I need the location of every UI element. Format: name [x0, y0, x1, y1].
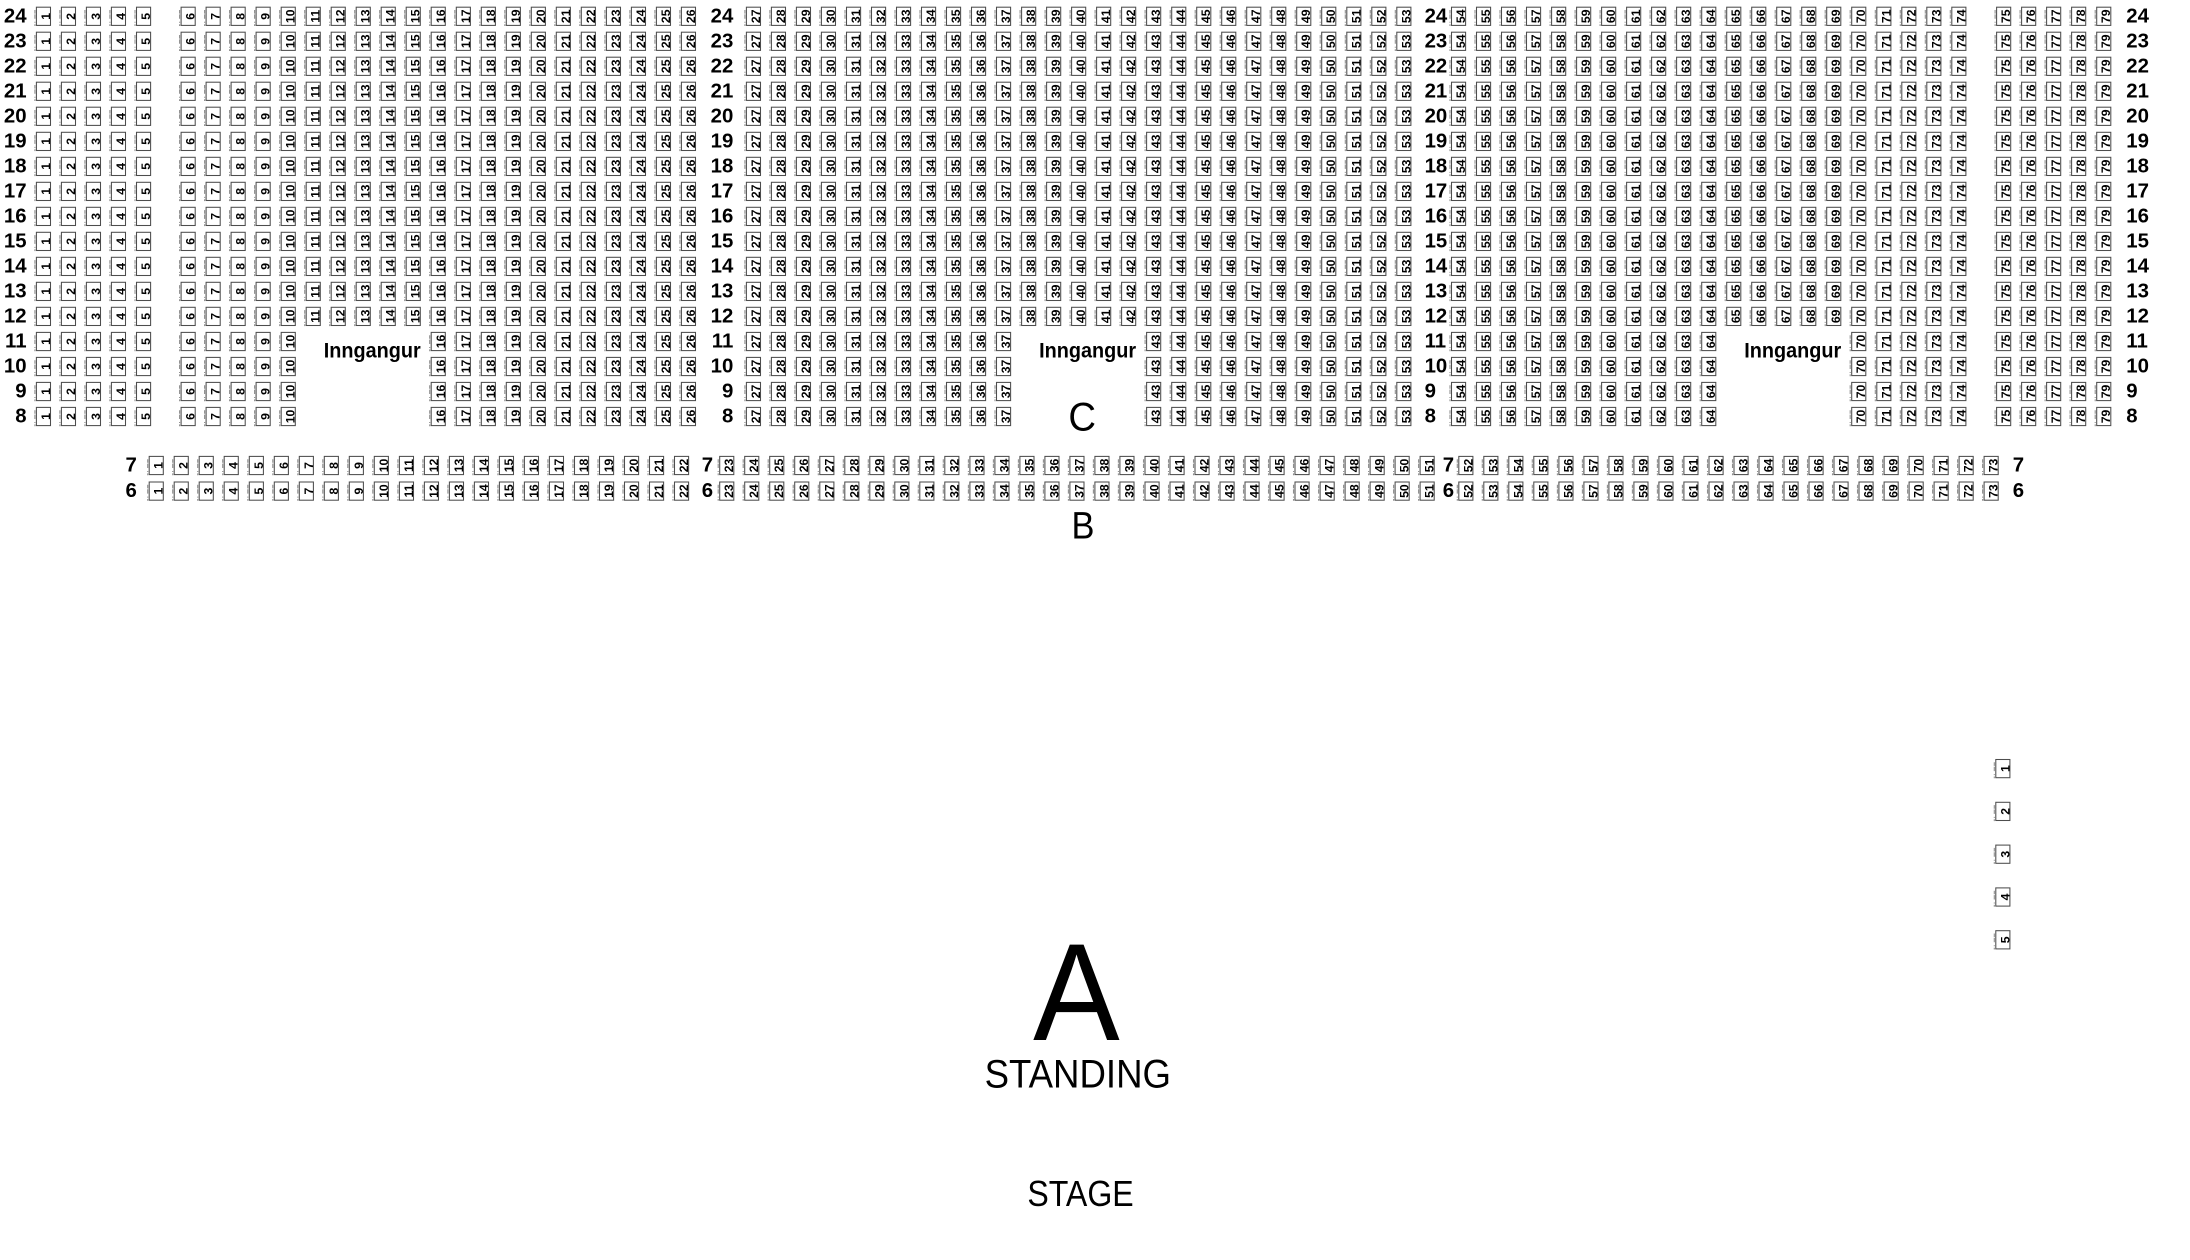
svg-text:9: 9	[259, 313, 273, 320]
svg-text:21: 21	[559, 360, 573, 374]
svg-text:25: 25	[659, 360, 673, 374]
svg-text:47: 47	[1249, 34, 1263, 48]
svg-text:4: 4	[114, 388, 128, 395]
svg-text:30: 30	[824, 360, 838, 374]
svg-text:16: 16	[1425, 205, 1448, 227]
svg-text:26: 26	[684, 134, 698, 148]
svg-text:33: 33	[899, 109, 913, 123]
svg-text:36: 36	[974, 159, 988, 173]
svg-text:9: 9	[259, 213, 273, 220]
svg-text:24: 24	[634, 109, 648, 123]
svg-text:30: 30	[824, 34, 838, 48]
svg-text:76: 76	[2024, 259, 2038, 273]
svg-text:55: 55	[1479, 360, 1493, 374]
svg-text:17: 17	[459, 9, 473, 23]
svg-text:35: 35	[1022, 484, 1036, 498]
svg-text:27: 27	[749, 34, 763, 48]
svg-text:7: 7	[209, 113, 223, 120]
svg-text:42: 42	[1124, 309, 1138, 323]
svg-text:57: 57	[1529, 309, 1543, 323]
svg-text:5: 5	[252, 487, 266, 494]
svg-text:5: 5	[139, 363, 153, 370]
svg-text:57: 57	[1529, 134, 1543, 148]
svg-text:24: 24	[634, 134, 648, 148]
svg-text:24: 24	[634, 385, 648, 399]
svg-text:62: 62	[1654, 284, 1668, 298]
svg-text:71: 71	[1879, 159, 1893, 173]
svg-text:17: 17	[459, 284, 473, 298]
svg-text:68: 68	[1804, 209, 1818, 223]
svg-text:2: 2	[64, 63, 78, 70]
svg-text:57: 57	[1529, 109, 1543, 123]
svg-text:71: 71	[1879, 234, 1893, 248]
svg-text:44: 44	[1174, 109, 1188, 123]
svg-text:34: 34	[924, 259, 938, 273]
svg-text:61: 61	[1629, 385, 1643, 399]
svg-text:53: 53	[1486, 484, 1500, 498]
svg-text:55: 55	[1479, 335, 1493, 349]
svg-text:68: 68	[1804, 59, 1818, 73]
svg-text:1: 1	[39, 163, 53, 170]
svg-text:19: 19	[509, 84, 523, 98]
svg-text:44: 44	[1174, 84, 1188, 98]
svg-text:72: 72	[1904, 84, 1918, 98]
svg-text:31: 31	[849, 9, 863, 23]
svg-text:42: 42	[1124, 234, 1138, 248]
svg-text:45: 45	[1199, 34, 1213, 48]
svg-text:28: 28	[774, 134, 788, 148]
svg-text:50: 50	[1324, 209, 1338, 223]
svg-text:63: 63	[1679, 410, 1693, 424]
svg-text:17: 17	[459, 309, 473, 323]
svg-text:35: 35	[949, 234, 963, 248]
svg-text:29: 29	[799, 84, 813, 98]
svg-text:72: 72	[1904, 109, 1918, 123]
svg-text:42: 42	[1124, 184, 1138, 198]
svg-text:22: 22	[584, 410, 598, 424]
svg-text:30: 30	[824, 234, 838, 248]
svg-text:37: 37	[999, 84, 1013, 98]
svg-text:16: 16	[434, 84, 448, 98]
svg-text:13: 13	[711, 280, 734, 302]
svg-text:10: 10	[284, 9, 298, 23]
svg-text:4: 4	[114, 13, 128, 20]
svg-text:65: 65	[1729, 59, 1743, 73]
svg-text:4: 4	[114, 363, 128, 370]
svg-text:55: 55	[1479, 184, 1493, 198]
svg-text:23: 23	[2126, 30, 2149, 52]
svg-text:65: 65	[1729, 284, 1743, 298]
svg-text:43: 43	[1149, 209, 1163, 223]
svg-text:73: 73	[1929, 234, 1943, 248]
svg-text:23: 23	[609, 410, 623, 424]
svg-text:59: 59	[1579, 385, 1593, 399]
svg-text:10: 10	[711, 356, 734, 378]
svg-text:64: 64	[1762, 459, 1776, 473]
svg-text:64: 64	[1704, 109, 1718, 123]
svg-text:1: 1	[39, 13, 53, 20]
svg-text:59: 59	[1579, 309, 1593, 323]
svg-text:22: 22	[584, 360, 598, 374]
svg-text:14: 14	[384, 109, 398, 123]
svg-text:64: 64	[1704, 59, 1718, 73]
svg-text:11: 11	[309, 60, 323, 73]
svg-text:11: 11	[309, 35, 323, 48]
svg-text:65: 65	[1787, 484, 1801, 498]
svg-text:36: 36	[974, 134, 988, 148]
svg-text:47: 47	[1249, 234, 1263, 248]
svg-text:70: 70	[1854, 385, 1868, 399]
svg-text:70: 70	[1854, 410, 1868, 424]
svg-text:5: 5	[139, 13, 153, 20]
svg-text:54: 54	[1454, 385, 1468, 399]
svg-text:45: 45	[1199, 234, 1213, 248]
svg-text:79: 79	[2099, 9, 2113, 23]
svg-text:51: 51	[1349, 159, 1363, 173]
svg-text:59: 59	[1579, 109, 1593, 123]
svg-text:50: 50	[1398, 484, 1412, 498]
svg-text:9: 9	[259, 413, 273, 420]
svg-text:53: 53	[1399, 109, 1413, 123]
svg-text:49: 49	[1299, 84, 1313, 98]
svg-text:62: 62	[1654, 34, 1668, 48]
svg-text:47: 47	[1249, 59, 1263, 73]
svg-text:54: 54	[1511, 459, 1525, 473]
svg-text:15: 15	[409, 209, 423, 223]
svg-text:49: 49	[1299, 284, 1313, 298]
svg-text:44: 44	[1174, 59, 1188, 73]
svg-text:17: 17	[459, 209, 473, 223]
svg-text:75: 75	[1999, 335, 2013, 349]
svg-text:49: 49	[1299, 59, 1313, 73]
svg-text:42: 42	[1124, 59, 1138, 73]
svg-text:33: 33	[899, 59, 913, 73]
svg-text:51: 51	[1423, 459, 1437, 473]
svg-text:33: 33	[899, 385, 913, 399]
svg-text:68: 68	[1804, 259, 1818, 273]
svg-text:49: 49	[1299, 209, 1313, 223]
svg-text:18: 18	[2126, 155, 2149, 177]
svg-text:71: 71	[1879, 209, 1893, 223]
svg-text:40: 40	[1074, 59, 1088, 73]
svg-text:46: 46	[1224, 385, 1238, 399]
svg-text:25: 25	[659, 34, 673, 48]
svg-text:27: 27	[749, 184, 763, 198]
svg-text:11: 11	[309, 185, 323, 198]
svg-text:17: 17	[459, 259, 473, 273]
svg-text:76: 76	[2024, 9, 2038, 23]
svg-text:23: 23	[609, 309, 623, 323]
svg-text:37: 37	[999, 184, 1013, 198]
svg-text:27: 27	[822, 459, 836, 473]
svg-text:67: 67	[1837, 484, 1851, 498]
svg-text:26: 26	[684, 209, 698, 223]
svg-text:20: 20	[2126, 105, 2149, 127]
svg-text:10: 10	[284, 259, 298, 273]
svg-text:42: 42	[1124, 84, 1138, 98]
svg-text:14: 14	[384, 59, 398, 73]
svg-text:55: 55	[1479, 134, 1493, 148]
svg-text:28: 28	[774, 59, 788, 73]
svg-text:10: 10	[284, 410, 298, 424]
svg-text:72: 72	[1904, 309, 1918, 323]
svg-text:20: 20	[1425, 105, 1448, 127]
svg-text:71: 71	[1879, 184, 1893, 198]
svg-text:63: 63	[1679, 109, 1693, 123]
svg-text:7: 7	[209, 138, 223, 145]
svg-text:20: 20	[534, 59, 548, 73]
svg-text:78: 78	[2074, 109, 2088, 123]
svg-text:25: 25	[659, 134, 673, 148]
svg-text:22: 22	[677, 459, 691, 473]
svg-text:30: 30	[824, 109, 838, 123]
svg-text:57: 57	[1529, 360, 1543, 374]
svg-text:69: 69	[1829, 184, 1843, 198]
svg-text:59: 59	[1579, 84, 1593, 98]
svg-text:71: 71	[1879, 134, 1893, 148]
svg-text:25: 25	[659, 385, 673, 399]
svg-text:43: 43	[1149, 259, 1163, 273]
svg-text:34: 34	[924, 34, 938, 48]
svg-text:32: 32	[874, 159, 888, 173]
svg-text:77: 77	[2049, 259, 2063, 273]
svg-text:55: 55	[1479, 234, 1493, 248]
svg-text:59: 59	[1579, 9, 1593, 23]
svg-text:56: 56	[1504, 184, 1518, 198]
svg-text:17: 17	[459, 109, 473, 123]
svg-text:15: 15	[409, 159, 423, 173]
svg-text:18: 18	[484, 410, 498, 424]
svg-text:19: 19	[509, 9, 523, 23]
svg-text:16: 16	[527, 484, 541, 498]
svg-text:2: 2	[64, 313, 78, 320]
svg-text:51: 51	[1349, 385, 1363, 399]
svg-text:29: 29	[799, 335, 813, 349]
svg-text:43: 43	[1149, 335, 1163, 349]
svg-text:32: 32	[874, 59, 888, 73]
svg-text:28: 28	[847, 484, 861, 498]
svg-text:59: 59	[1579, 209, 1593, 223]
svg-text:50: 50	[1324, 109, 1338, 123]
svg-text:20: 20	[534, 159, 548, 173]
svg-text:6: 6	[184, 313, 198, 320]
svg-text:60: 60	[1604, 259, 1618, 273]
svg-text:19: 19	[509, 59, 523, 73]
svg-text:14: 14	[384, 234, 398, 248]
svg-text:44: 44	[1174, 335, 1188, 349]
svg-text:68: 68	[1804, 34, 1818, 48]
svg-text:79: 79	[2099, 184, 2113, 198]
svg-text:19: 19	[509, 209, 523, 223]
svg-text:44: 44	[1174, 159, 1188, 173]
svg-text:40: 40	[1074, 134, 1088, 148]
svg-text:31: 31	[849, 309, 863, 323]
svg-text:73: 73	[1929, 209, 1943, 223]
svg-text:58: 58	[1554, 335, 1568, 349]
svg-text:73: 73	[1929, 84, 1943, 98]
svg-text:9: 9	[259, 88, 273, 95]
svg-text:47: 47	[1323, 484, 1337, 498]
svg-text:3: 3	[1998, 851, 2012, 858]
svg-text:78: 78	[2074, 9, 2088, 23]
svg-text:39: 39	[1122, 484, 1136, 498]
svg-text:52: 52	[1461, 484, 1475, 498]
svg-text:61: 61	[1629, 159, 1643, 173]
svg-text:73: 73	[1929, 360, 1943, 374]
svg-text:70: 70	[1854, 335, 1868, 349]
svg-text:65: 65	[1729, 309, 1743, 323]
svg-text:76: 76	[2024, 184, 2038, 198]
svg-text:78: 78	[2074, 84, 2088, 98]
svg-text:26: 26	[797, 484, 811, 498]
svg-text:75: 75	[1999, 134, 2013, 148]
svg-text:18: 18	[484, 309, 498, 323]
svg-text:2: 2	[177, 487, 191, 494]
svg-text:54: 54	[1454, 209, 1468, 223]
svg-text:76: 76	[2024, 284, 2038, 298]
svg-text:66: 66	[1754, 159, 1768, 173]
svg-text:54: 54	[1454, 134, 1468, 148]
svg-text:52: 52	[1374, 109, 1388, 123]
svg-text:22: 22	[4, 55, 27, 77]
svg-text:58: 58	[1554, 184, 1568, 198]
svg-text:2: 2	[64, 113, 78, 120]
svg-text:19: 19	[509, 360, 523, 374]
svg-text:19: 19	[509, 410, 523, 424]
svg-text:69: 69	[1829, 309, 1843, 323]
svg-text:10: 10	[377, 484, 391, 498]
svg-text:49: 49	[1299, 259, 1313, 273]
svg-text:61: 61	[1629, 59, 1643, 73]
svg-text:57: 57	[1529, 209, 1543, 223]
svg-text:20: 20	[534, 209, 548, 223]
svg-text:73: 73	[1929, 59, 1943, 73]
svg-text:13: 13	[359, 184, 373, 198]
svg-text:40: 40	[1074, 84, 1088, 98]
svg-text:4: 4	[1998, 893, 2012, 900]
svg-text:44: 44	[1174, 410, 1188, 424]
svg-text:6: 6	[184, 338, 198, 345]
svg-text:27: 27	[749, 159, 763, 173]
svg-text:60: 60	[1604, 184, 1618, 198]
svg-text:79: 79	[2099, 360, 2113, 374]
svg-text:24: 24	[634, 360, 648, 374]
svg-text:54: 54	[1454, 410, 1468, 424]
svg-text:46: 46	[1224, 59, 1238, 73]
svg-text:13: 13	[359, 134, 373, 148]
svg-text:53: 53	[1399, 59, 1413, 73]
svg-text:8: 8	[234, 38, 248, 45]
svg-text:43: 43	[1149, 34, 1163, 48]
svg-text:4: 4	[114, 213, 128, 220]
svg-text:29: 29	[799, 410, 813, 424]
svg-text:48: 48	[1274, 109, 1288, 123]
svg-text:51: 51	[1349, 309, 1363, 323]
svg-text:4: 4	[114, 313, 128, 320]
svg-text:44: 44	[1174, 9, 1188, 23]
svg-text:4: 4	[227, 462, 241, 469]
svg-text:77: 77	[2049, 385, 2063, 399]
svg-text:77: 77	[2049, 159, 2063, 173]
svg-text:8: 8	[234, 263, 248, 270]
svg-text:67: 67	[1837, 459, 1851, 473]
svg-text:46: 46	[1224, 134, 1238, 148]
svg-text:14: 14	[384, 159, 398, 173]
svg-text:50: 50	[1398, 459, 1412, 473]
svg-text:27: 27	[749, 209, 763, 223]
svg-text:56: 56	[1504, 309, 1518, 323]
svg-text:58: 58	[1554, 9, 1568, 23]
svg-text:3: 3	[89, 38, 103, 45]
svg-text:77: 77	[2049, 335, 2063, 349]
svg-text:33: 33	[899, 209, 913, 223]
svg-text:30: 30	[824, 134, 838, 148]
svg-text:1: 1	[39, 188, 53, 195]
svg-text:9: 9	[2126, 381, 2137, 403]
svg-text:1: 1	[39, 213, 53, 220]
svg-text:8: 8	[234, 163, 248, 170]
svg-text:7: 7	[209, 188, 223, 195]
svg-text:49: 49	[1299, 410, 1313, 424]
svg-text:41: 41	[1099, 234, 1113, 248]
svg-text:59: 59	[1579, 184, 1593, 198]
svg-text:28: 28	[774, 335, 788, 349]
svg-text:35: 35	[949, 34, 963, 48]
svg-text:7: 7	[302, 462, 316, 469]
svg-text:22: 22	[2126, 55, 2149, 77]
svg-text:50: 50	[1324, 159, 1338, 173]
svg-text:21: 21	[559, 109, 573, 123]
svg-text:41: 41	[1099, 34, 1113, 48]
svg-text:36: 36	[974, 209, 988, 223]
svg-text:9: 9	[259, 363, 273, 370]
svg-text:26: 26	[684, 410, 698, 424]
svg-text:35: 35	[949, 59, 963, 73]
svg-text:47: 47	[1249, 209, 1263, 223]
svg-text:70: 70	[1854, 159, 1868, 173]
svg-text:7: 7	[209, 313, 223, 320]
svg-text:26: 26	[684, 360, 698, 374]
svg-text:74: 74	[1954, 159, 1968, 173]
svg-text:3: 3	[89, 163, 103, 170]
svg-text:50: 50	[1324, 34, 1338, 48]
svg-text:23: 23	[609, 59, 623, 73]
svg-text:68: 68	[1862, 459, 1876, 473]
svg-text:35: 35	[949, 9, 963, 23]
svg-text:25: 25	[772, 484, 786, 498]
svg-text:76: 76	[2024, 309, 2038, 323]
svg-text:77: 77	[2049, 309, 2063, 323]
svg-text:32: 32	[874, 284, 888, 298]
svg-text:20: 20	[627, 459, 641, 473]
svg-text:63: 63	[1679, 309, 1693, 323]
svg-text:57: 57	[1529, 9, 1543, 23]
svg-text:3: 3	[89, 363, 103, 370]
svg-text:56: 56	[1504, 335, 1518, 349]
svg-text:32: 32	[874, 410, 888, 424]
svg-text:62: 62	[1654, 385, 1668, 399]
svg-text:42: 42	[1124, 34, 1138, 48]
svg-text:77: 77	[2049, 109, 2063, 123]
svg-text:44: 44	[1174, 209, 1188, 223]
svg-text:37: 37	[999, 360, 1013, 374]
svg-text:31: 31	[849, 109, 863, 123]
svg-text:17: 17	[552, 459, 566, 473]
svg-text:37: 37	[1072, 459, 1086, 473]
svg-text:65: 65	[1729, 234, 1743, 248]
svg-text:23: 23	[609, 109, 623, 123]
svg-text:17: 17	[459, 184, 473, 198]
